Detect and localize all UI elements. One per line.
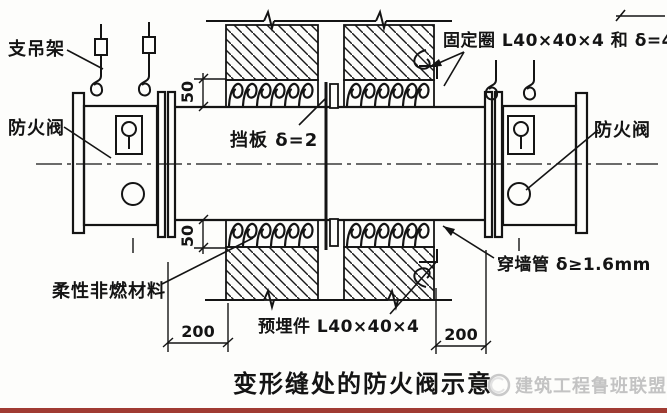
dim-50-bottom-label: 50 (178, 225, 197, 247)
baffle-label: 挡板 δ=2 (230, 129, 318, 151)
hanger-label: 支吊架 (7, 38, 65, 60)
diagram-canvas: 50 50 200 200 支吊架 防火阀 固定圈 L40×40 (0, 0, 667, 413)
diagram-title: 变形缝处的防火阀示意 (233, 370, 493, 398)
flexible-material-label: 柔性非燃材料 (52, 280, 166, 302)
dim-200-right-label: 200 (444, 325, 477, 344)
fire-damper-right-label: 防火阀 (594, 119, 651, 141)
fire-damper-left-label: 防火阀 (8, 117, 65, 139)
dim-50-top-label: 50 (178, 81, 197, 103)
embedded-part-label: 预埋件 L40×40×4 (258, 316, 419, 337)
watermark: 建筑工程鲁班联盟 (489, 375, 667, 397)
diagram-page: 50 50 200 200 支吊架 防火阀 固定圈 L40×40 (0, 0, 667, 413)
dim-200-left-label: 200 (181, 322, 214, 341)
fixing-ring-label: 固定圈 L40×40×4 和 δ=4 (443, 30, 667, 51)
watermark-text: 建筑工程鲁班联盟 (515, 375, 667, 397)
wall-sleeve-label: 穿墙管 δ≥1.6mm (497, 254, 651, 275)
bottom-accent-bar (0, 408, 667, 413)
